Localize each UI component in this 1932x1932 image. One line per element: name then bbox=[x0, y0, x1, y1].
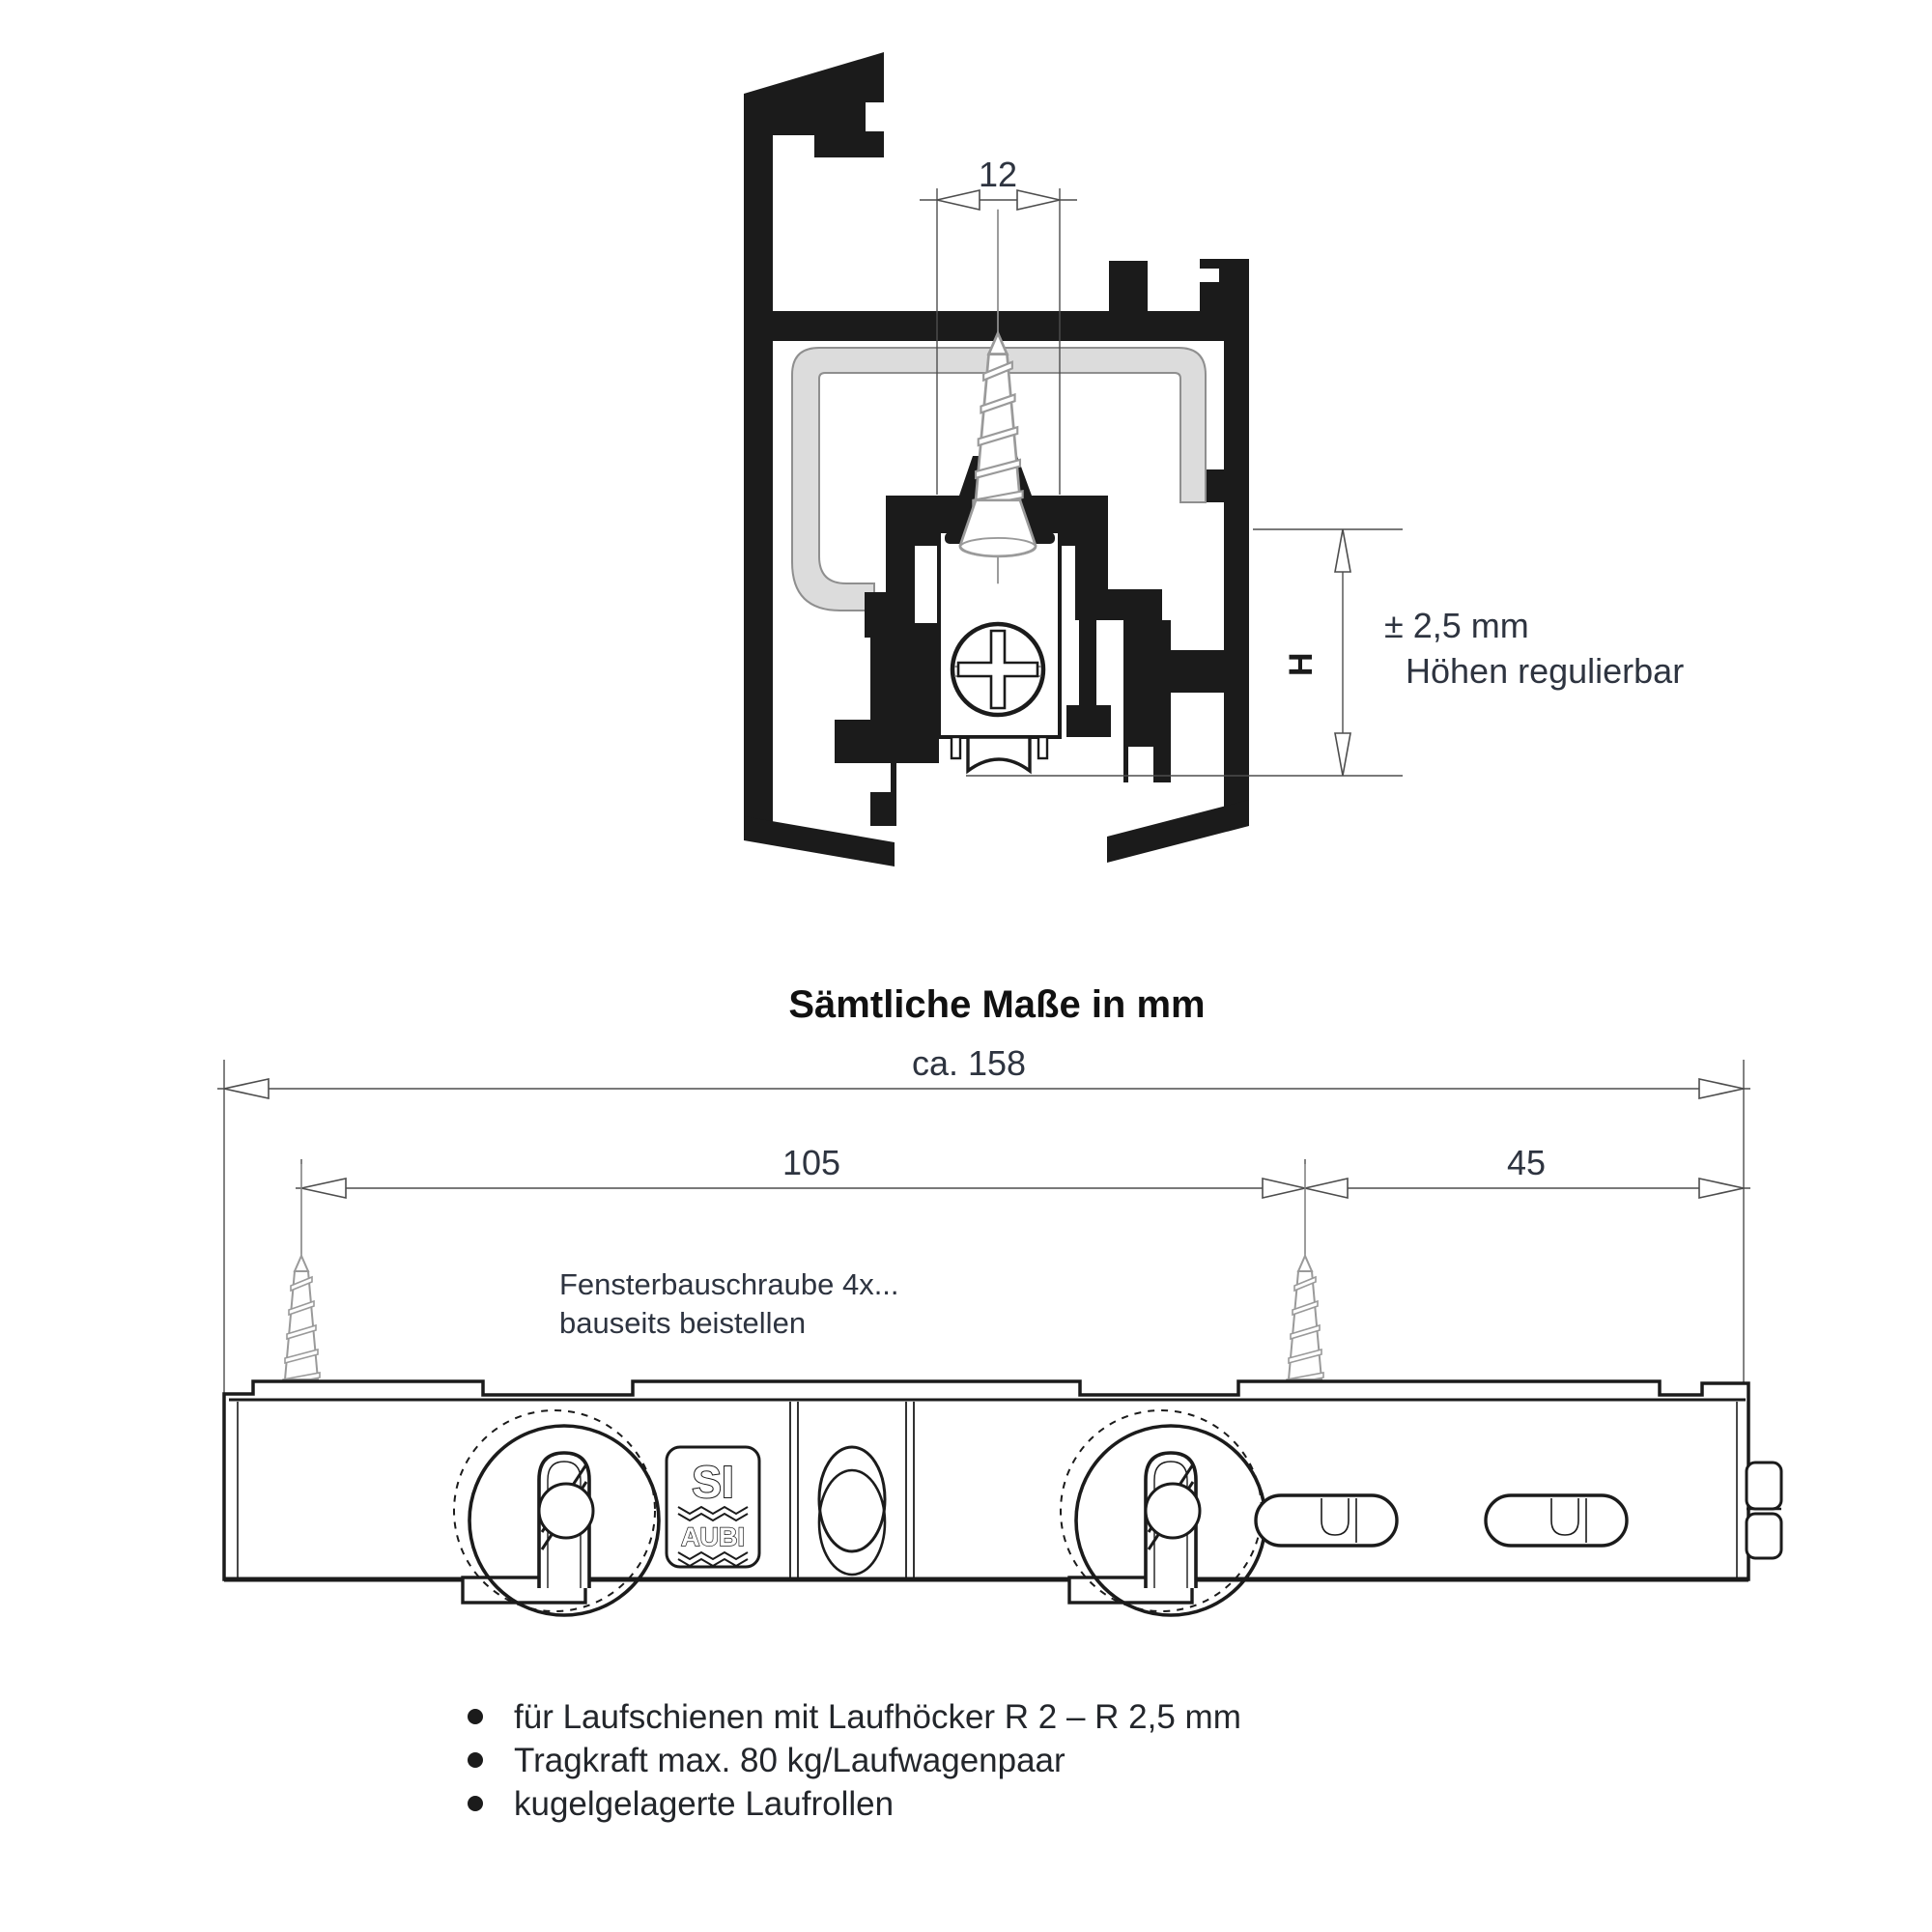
bullet-icon bbox=[468, 1709, 483, 1724]
carriage-body bbox=[224, 1381, 1748, 1579]
dim-H-label: H bbox=[1283, 652, 1320, 676]
end-screw bbox=[1747, 1463, 1781, 1558]
tolerance-desc: Höhen regulierbar bbox=[1406, 651, 1684, 691]
logo-aubi: AUBI bbox=[681, 1522, 745, 1551]
logo-si: SI bbox=[692, 1457, 733, 1507]
dim-total-label: ca. 158 bbox=[912, 1043, 1026, 1083]
feature-item: für Laufschienen mit Laufhöcker R 2 – R … bbox=[514, 1698, 1241, 1736]
dim-45-label: 45 bbox=[1507, 1143, 1546, 1182]
phillips-screw bbox=[952, 624, 1043, 715]
screw-note-line2: bauseits beistellen bbox=[559, 1306, 806, 1340]
technical-drawing: 12 bbox=[0, 0, 1932, 1932]
slot-left bbox=[1256, 1495, 1397, 1546]
screw-note-line1: Fensterbauschraube 4x... bbox=[559, 1267, 899, 1301]
profile-cross-section: 12 bbox=[744, 52, 1684, 867]
features-list: für Laufschienen mit Laufhöcker R 2 – R … bbox=[468, 1698, 1241, 1823]
si-aubi-logo: SI AUBI bbox=[667, 1447, 759, 1567]
dim-total: ca. 158 bbox=[217, 1043, 1750, 1395]
caption: Sämtliche Maße in mm bbox=[788, 983, 1205, 1026]
roller-wheel-section bbox=[952, 737, 1047, 771]
bullet-icon bbox=[468, 1752, 483, 1768]
dim-105-label: 105 bbox=[782, 1143, 840, 1182]
feature-item: kugelgelagerte Laufrollen bbox=[514, 1785, 894, 1823]
screw-note: Fensterbauschraube 4x... bauseits beiste… bbox=[559, 1267, 899, 1340]
slot-right bbox=[1486, 1495, 1627, 1546]
tolerance-value: ± 2,5 mm bbox=[1384, 606, 1529, 645]
feature-item: Tragkraft max. 80 kg/Laufwagenpaar bbox=[514, 1742, 1065, 1779]
bullet-icon bbox=[468, 1796, 483, 1811]
tolerance-note: ± 2,5 mm Höhen regulierbar bbox=[1384, 606, 1684, 691]
carriage-side-view: ca. 158 105 45 Fensterbauschraube 4x... … bbox=[217, 1043, 1781, 1615]
dim-12-label: 12 bbox=[979, 155, 1017, 194]
fixing-screw-icon bbox=[960, 210, 1036, 583]
